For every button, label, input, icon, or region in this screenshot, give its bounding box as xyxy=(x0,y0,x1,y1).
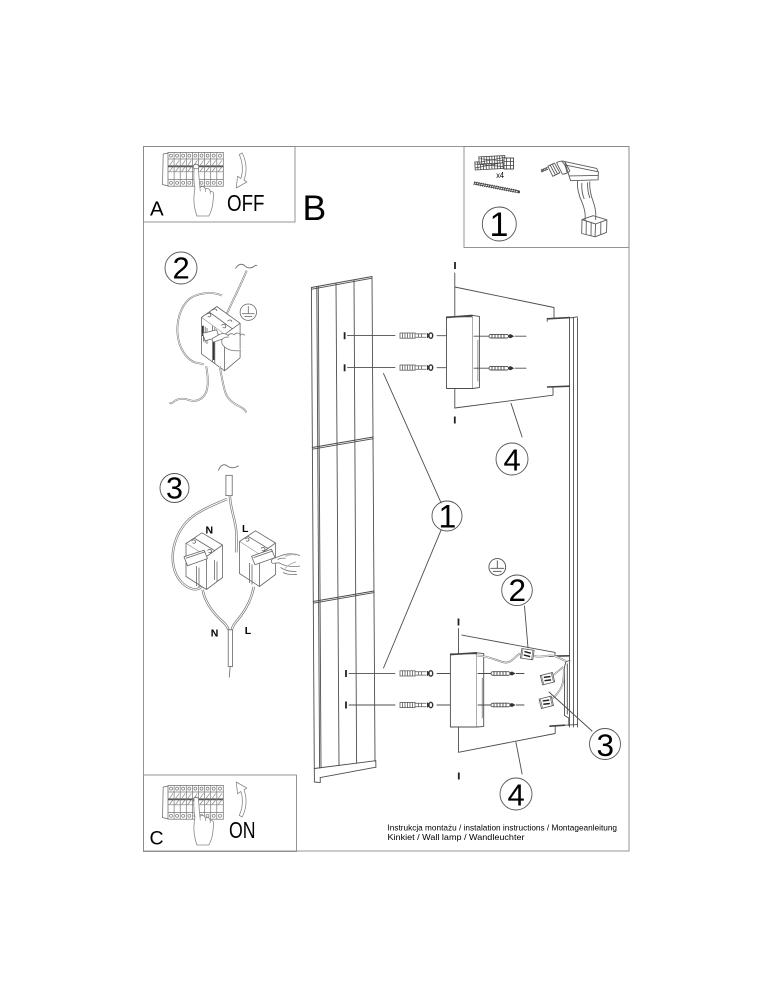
svg-text:OFF: OFF xyxy=(227,190,265,216)
svg-text:1: 1 xyxy=(439,499,457,535)
svg-text:L: L xyxy=(245,625,252,637)
svg-text:4: 4 xyxy=(508,778,525,813)
svg-text:C: C xyxy=(150,828,164,850)
svg-text:2: 2 xyxy=(173,251,190,286)
svg-text:N: N xyxy=(211,628,219,640)
svg-text:Kinkiet / Wall lamp / Wandleuc: Kinkiet / Wall lamp / Wandleuchter xyxy=(388,832,525,842)
svg-text:ON: ON xyxy=(229,817,256,843)
svg-text:x4: x4 xyxy=(496,170,504,180)
svg-text:3: 3 xyxy=(166,472,183,506)
svg-text:B: B xyxy=(303,188,327,228)
svg-text:L: L xyxy=(242,523,249,535)
svg-text:A: A xyxy=(150,198,164,221)
svg-text:N: N xyxy=(206,525,214,537)
svg-text:2: 2 xyxy=(509,572,527,608)
svg-text:3: 3 xyxy=(597,727,615,763)
svg-text:1: 1 xyxy=(490,206,509,244)
svg-text:4: 4 xyxy=(504,443,521,478)
svg-text:Instrukcja montażu / instalati: Instrukcja montażu / instalation instruc… xyxy=(388,823,618,833)
